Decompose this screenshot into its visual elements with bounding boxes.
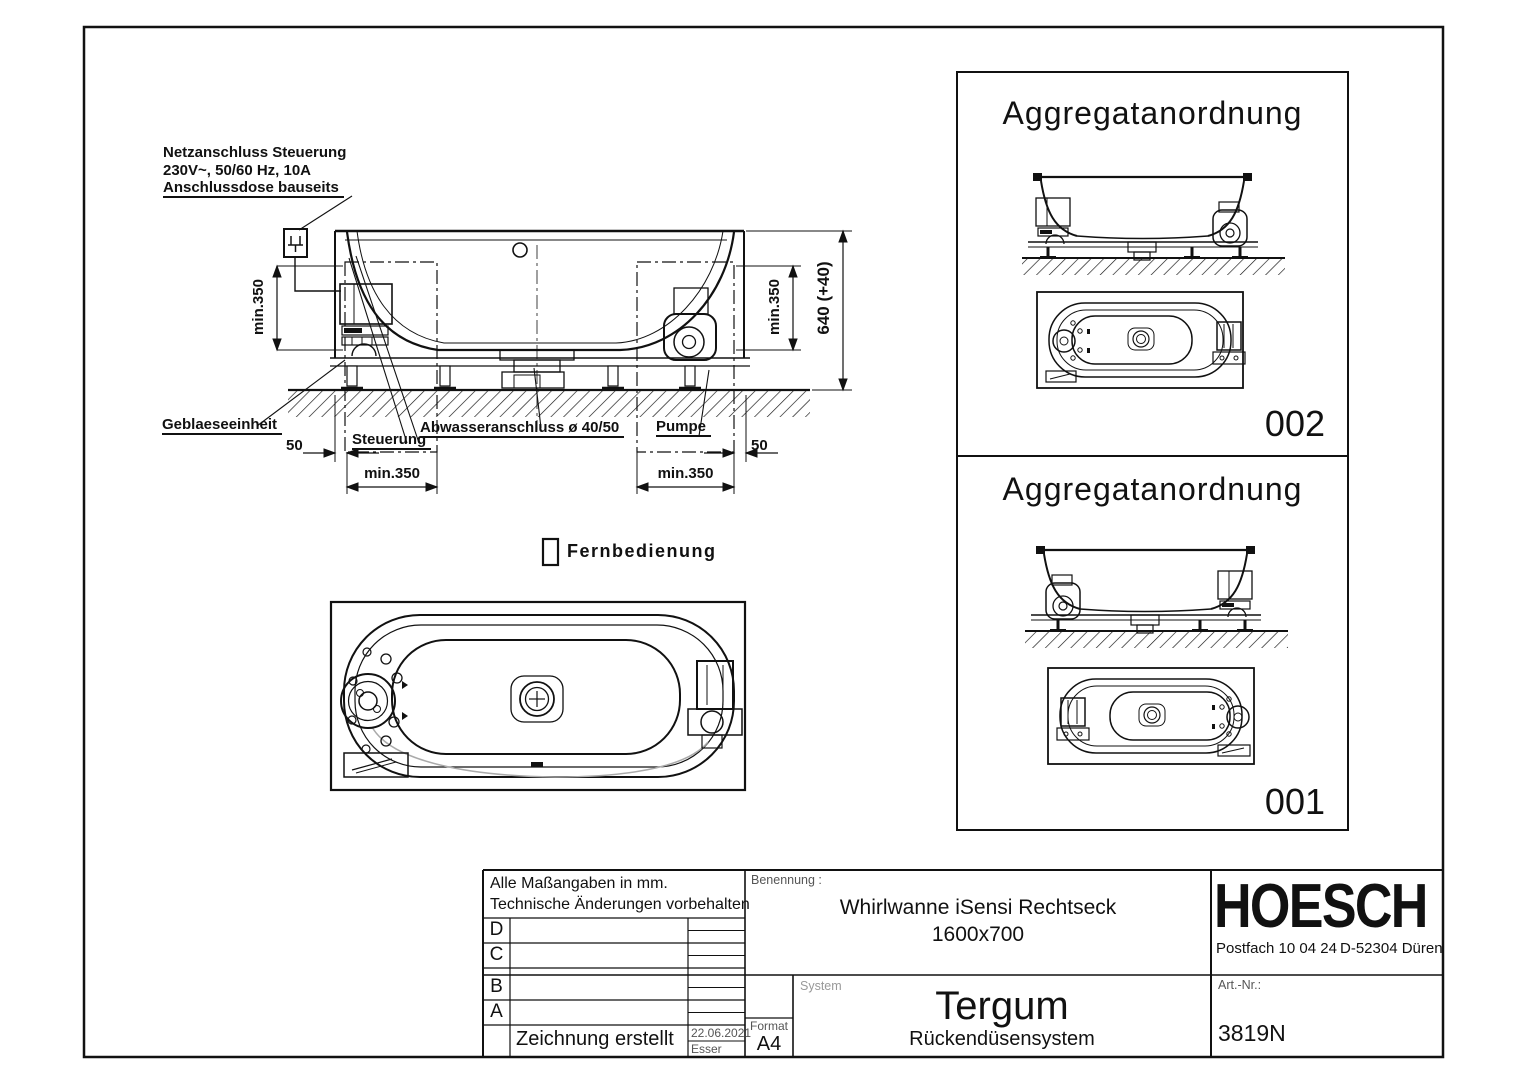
remote-control-icon [543,539,558,565]
plan-drain [511,676,563,722]
panel-002-section [1022,173,1285,275]
power-note-line2: 230V~, 50/60 Hz, 10A [163,162,311,179]
tb-address-city: D-52304 Düren [1340,940,1443,957]
pump-unit [664,288,716,360]
main-section-view [257,196,810,452]
panel-002-title: Aggregatanordnung [957,95,1348,132]
dim-height-total: 640 (+40) [814,228,834,368]
panel-001-plan [1048,668,1254,764]
blower-label: Geblaeseeinheit [162,416,282,435]
tb-product-name: Whirlwanne iSensi Rechtseck [745,896,1211,920]
tb-revision-row-d: D [483,919,510,941]
ground-hatch [288,390,810,417]
tb-address-po-box: Postfach 10 04 24 [1216,940,1337,957]
tb-revision-row-c: C [483,944,510,966]
tb-art-nr-label: Art.-Nr.: [1218,978,1261,992]
plan-pump [688,661,742,748]
dim-gap-right: 50 [751,437,768,454]
tb-created-label: Zeichnung erstellt [516,1028,674,1051]
power-plug-icon [284,229,307,257]
tb-created-by: Esser [691,1043,722,1057]
tb-product-size: 1600x700 [745,923,1211,947]
pump-label: Pumpe [656,418,711,437]
panel-002-plan [1037,292,1245,388]
tb-benennung-label: Benennung : [751,873,822,887]
tb-system-name: Tergum [793,983,1211,1029]
tb-note-line2: Technische Änderungen vorbehalten [490,896,750,914]
blower-control-unit [340,284,392,356]
panel-001-title: Aggregatanordnung [957,471,1348,508]
tb-revision-row-b: B [483,976,510,998]
dim-clearance-right-vertical: min.350 [766,264,783,350]
plan-jets [348,648,408,753]
power-note-line3: Anschlussdose bauseits [163,179,344,198]
dim-gap-left: 50 [286,437,303,454]
panel-001-section [1025,546,1288,648]
support-legs [341,366,701,388]
dim-clearance-right-bottom: min.350 [637,465,734,482]
drain-label: Abwasseranschluss ø 40/50 [420,419,624,438]
remote-label: Fernbedienung [567,541,717,562]
tb-revision-row-a: A [483,1001,510,1023]
power-note-line1: Netzanschluss Steuerung [163,144,346,161]
drawing-sheet: { "annotations": { "power_note_line1": "… [0,0,1528,1080]
tb-note-line1: Alle Maßangaben in mm. [490,875,668,893]
brand-logo: HOESCH [1214,876,1427,938]
dim-clearance-left-bottom: min.350 [347,465,437,482]
tb-format-value: A4 [745,1033,793,1056]
tb-art-nr-value: 3819N [1218,1020,1286,1046]
tb-system-subtitle: Rückendüsensystem [793,1028,1211,1051]
tb-format-label: Format [750,1020,788,1034]
panel-001-number: 001 [1160,781,1325,822]
dim-clearance-left-vertical: min.350 [250,264,267,350]
main-plan-view [331,602,745,790]
panel-002-number: 002 [1160,403,1325,444]
tb-created-date: 22.06.2021 [691,1027,751,1041]
overflow-hole [513,243,527,257]
